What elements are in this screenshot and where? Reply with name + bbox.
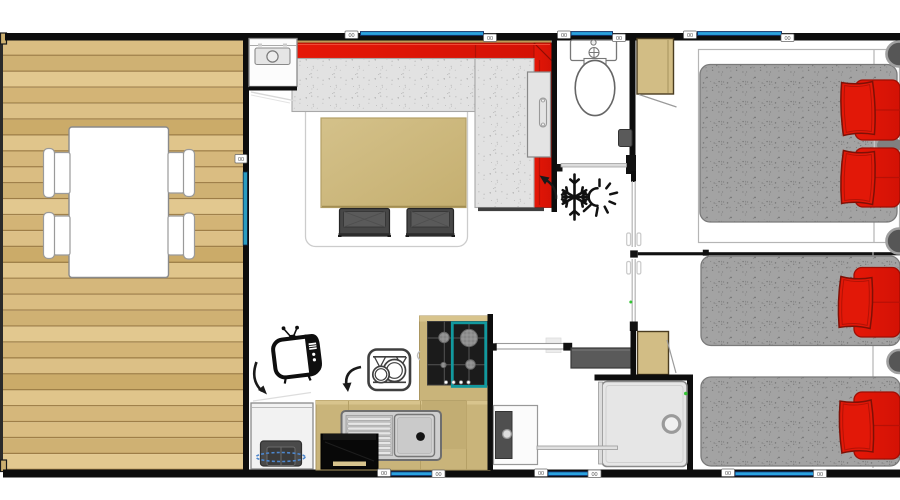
- svg-text:00: 00: [381, 471, 387, 477]
- svg-text:00: 00: [784, 36, 790, 42]
- svg-text:00: 00: [487, 36, 493, 42]
- svg-text:00: 00: [538, 471, 544, 477]
- svg-text:00: 00: [725, 471, 731, 477]
- svg-text:00: 00: [435, 472, 441, 478]
- svg-text:00: 00: [348, 33, 354, 39]
- svg-text:00: 00: [561, 33, 567, 39]
- svg-text:00: 00: [817, 472, 823, 478]
- svg-text:00: 00: [616, 36, 622, 42]
- svg-text:00: 00: [687, 33, 693, 39]
- svg-text:00: 00: [238, 157, 244, 163]
- svg-text:00: 00: [591, 472, 597, 478]
